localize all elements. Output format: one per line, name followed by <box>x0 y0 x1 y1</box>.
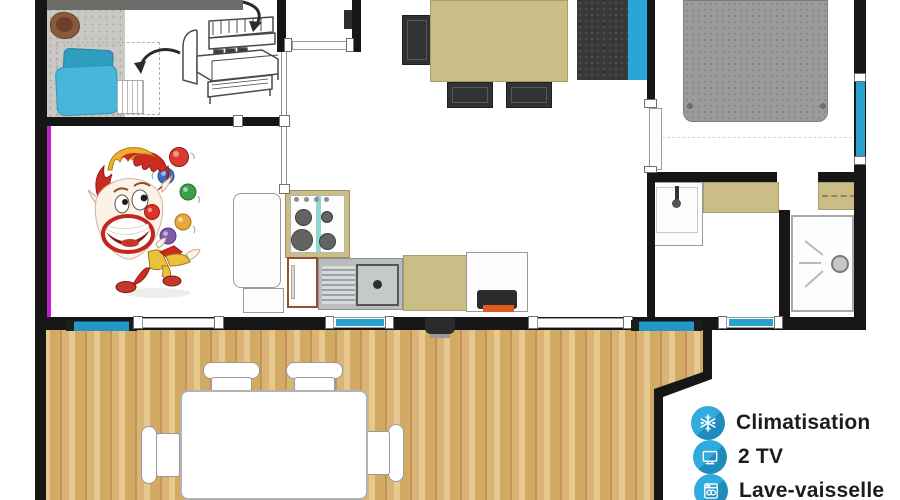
wall-bracket <box>644 166 657 173</box>
sink-drainer <box>322 266 355 304</box>
hob-knob <box>304 197 309 202</box>
wall-bathroom-top2 <box>818 172 866 182</box>
sliding-door <box>142 318 216 328</box>
dining-chair <box>506 82 552 108</box>
magenta-accent-strip <box>47 126 51 317</box>
door-bracket <box>284 38 292 52</box>
wall-bedroom2-bottom <box>35 117 290 126</box>
burner <box>295 209 312 226</box>
dining-chair <box>402 15 432 65</box>
clown-illustration <box>62 140 244 305</box>
bed-foot <box>820 103 826 109</box>
window-bracket <box>774 316 783 329</box>
window <box>856 82 865 156</box>
wardrobe-top <box>47 0 243 10</box>
hob-knob <box>324 197 329 202</box>
wall-bathroom-top <box>647 172 777 182</box>
oven-handle <box>291 265 295 299</box>
sink-drain <box>373 280 382 289</box>
hob-knob <box>314 197 319 202</box>
kitchen-counter <box>403 255 467 311</box>
bathroom-counter <box>703 182 779 213</box>
media-cabinet-blue-panel <box>628 0 648 80</box>
burner <box>319 233 336 250</box>
floor-plan-image: Climatisation 2 TV <box>0 0 900 500</box>
dishwasher-icon <box>694 474 728 500</box>
window <box>639 321 694 331</box>
wall-bracket <box>233 115 243 127</box>
entrance-step <box>425 318 455 334</box>
faucet-head <box>672 199 681 208</box>
hob-knob <box>294 197 299 202</box>
sliding-door <box>537 318 625 328</box>
window-cap <box>66 320 74 331</box>
legend-item-tv: 2 TV <box>693 440 783 474</box>
entry-sliding-door <box>292 41 348 50</box>
bed-foot <box>687 103 693 109</box>
wall-bracket <box>644 99 657 108</box>
legend-label: Lave-vaisselle <box>739 479 884 500</box>
deck-chair-seat <box>156 433 180 477</box>
window-bracket <box>385 316 394 329</box>
entrance-step-shadow <box>430 334 450 338</box>
door-bracket <box>346 38 354 52</box>
kitchen-cabinet <box>243 288 284 313</box>
counter-dash <box>822 195 856 197</box>
legend-label: Climatisation <box>736 411 870 435</box>
dining-table <box>430 0 568 82</box>
bunk-ladder <box>117 80 144 114</box>
pillow-light <box>55 64 119 116</box>
shower-drain <box>831 255 849 273</box>
deck-chair-seat <box>366 431 390 475</box>
wall-left <box>35 0 47 330</box>
window <box>729 319 773 326</box>
legend-item-climatisation: Climatisation <box>691 406 870 440</box>
wall-right <box>854 0 866 330</box>
wall-divider-bottom <box>647 170 655 317</box>
wall-bracket <box>279 115 290 127</box>
deck-table <box>180 390 368 500</box>
door-bracket <box>214 316 224 329</box>
burner <box>321 211 333 223</box>
window-bracket <box>854 73 866 82</box>
wall-shower-divider <box>779 210 790 317</box>
dining-chair <box>447 82 493 108</box>
bedside-pouf-top <box>56 17 73 32</box>
window <box>74 321 129 331</box>
window-bracket <box>854 156 866 165</box>
window-cap <box>694 320 702 331</box>
arrow-down <box>238 0 266 32</box>
window <box>336 319 384 326</box>
legend-label: 2 TV <box>738 445 783 469</box>
tv-icon <box>693 440 727 474</box>
snowflake-icon <box>691 406 725 440</box>
bedroom-door-leaf <box>649 108 662 170</box>
wall-divider-top <box>647 0 655 107</box>
stove-flame <box>483 305 514 312</box>
arrow-left <box>133 46 183 80</box>
deck-chair-back <box>388 424 404 482</box>
window-cap <box>631 320 639 331</box>
bedroom-dashed-line <box>662 137 852 138</box>
legend-item-lave-vaisselle: Lave-vaisselle <box>694 474 884 500</box>
burner <box>291 229 313 251</box>
deck-terrace <box>35 317 715 500</box>
deck-chair-back <box>141 426 157 484</box>
double-bed <box>683 0 828 122</box>
wall-bracket <box>279 184 290 194</box>
media-cabinet <box>577 0 628 80</box>
